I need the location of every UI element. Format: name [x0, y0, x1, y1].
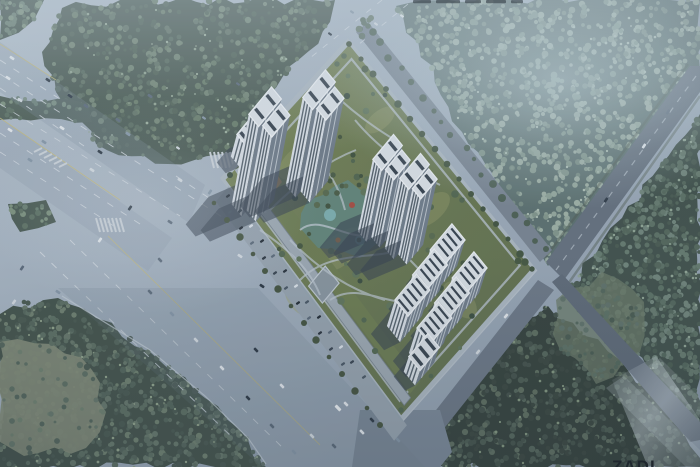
- svg-text:ZADL: ZADL: [612, 457, 661, 467]
